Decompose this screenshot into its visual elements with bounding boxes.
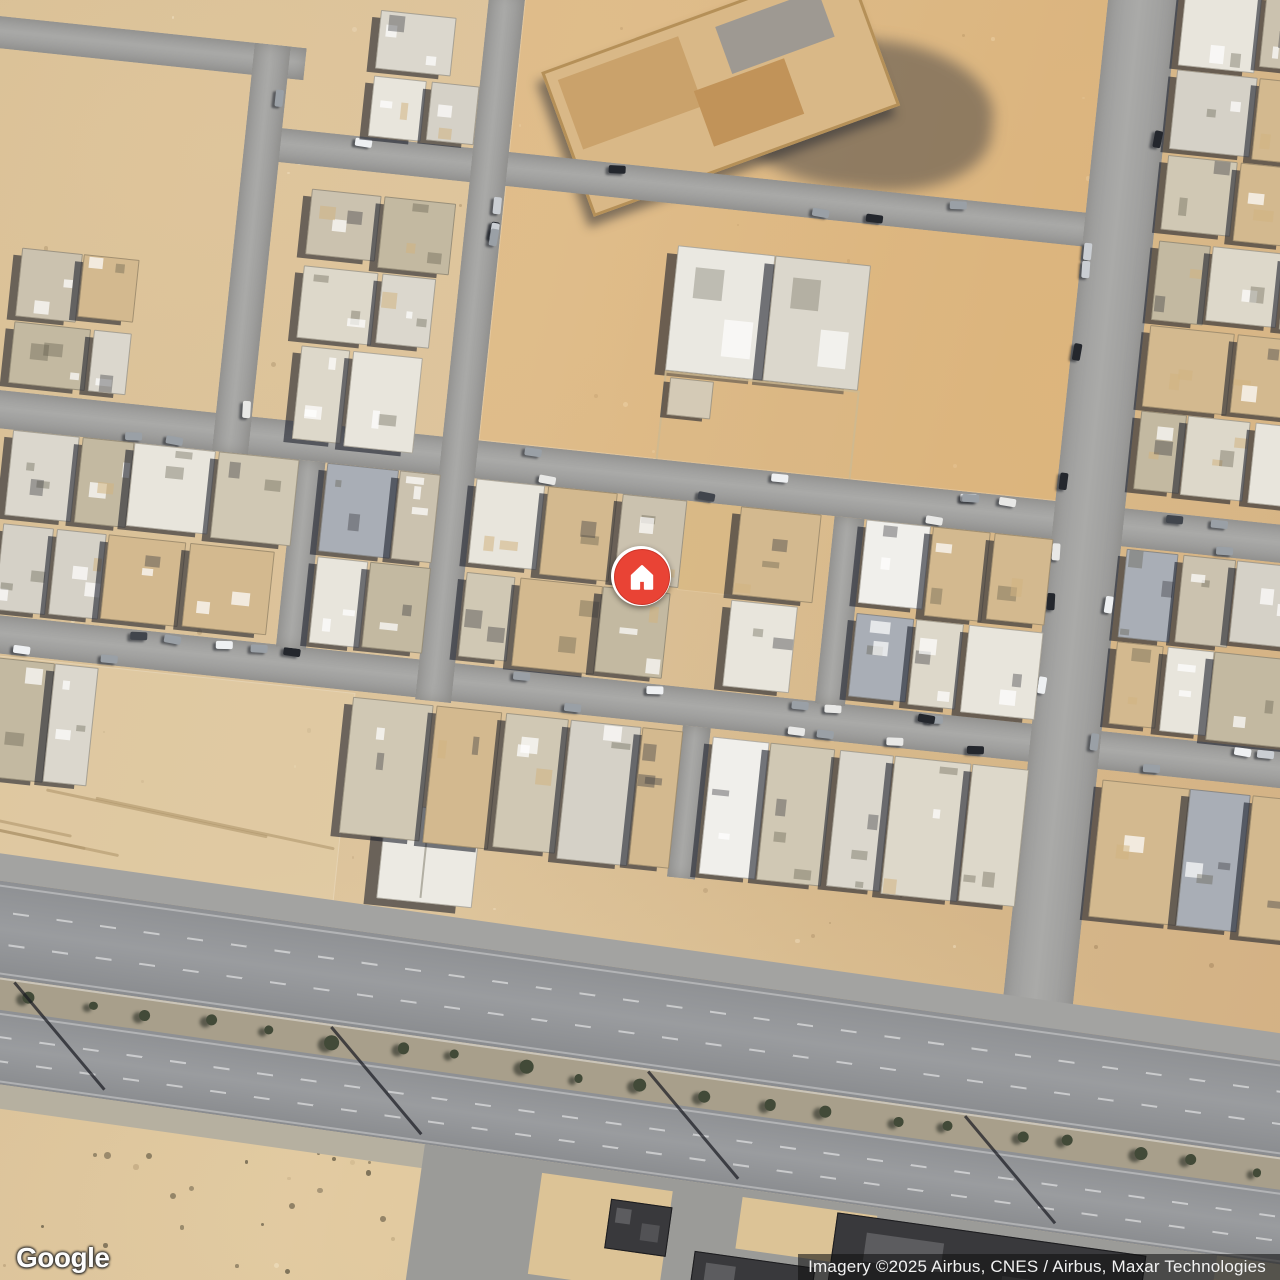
home-icon: [626, 561, 658, 593]
car: [1216, 546, 1233, 555]
roof-structure: [615, 1208, 632, 1224]
roof-structure: [1230, 101, 1241, 112]
attribution-bar: Imagery ©2025 Airbus, CNES / Airbus, Max…: [798, 1254, 1280, 1280]
building: [1206, 651, 1280, 749]
roof-structure: [1264, 700, 1274, 714]
roof-structure: [1218, 862, 1231, 870]
sand-pebble: [1209, 963, 1214, 968]
roof-structure: [1267, 900, 1280, 908]
sand-pebble: [352, 27, 357, 32]
car: [1257, 750, 1275, 760]
roof-structure: [1234, 437, 1248, 449]
roof-structure: [1233, 716, 1246, 728]
roof-structure: [1267, 348, 1280, 361]
median-tree: [138, 1009, 150, 1021]
construction-building: [604, 1199, 672, 1257]
roof-structure: [1260, 588, 1275, 605]
roof-structure: [1209, 45, 1224, 64]
building: [1178, 0, 1263, 74]
building: [1169, 69, 1258, 157]
roof-structure: [1230, 53, 1241, 68]
roof-structure: [704, 1263, 736, 1280]
median-tree: [449, 1049, 459, 1059]
marker-red-circle: [614, 549, 670, 605]
highway-layer: [0, 0, 1268, 1280]
roof-structure: [1259, 133, 1271, 149]
roof-structure: [1241, 385, 1257, 403]
map-canvas[interactable]: Google Imagery ©2025 Airbus, CNES / Airb…: [0, 0, 1280, 1280]
roof-structure: [640, 1223, 660, 1242]
location-marker[interactable]: [611, 546, 671, 606]
roof-structure: [1196, 874, 1213, 885]
building: [1229, 560, 1280, 648]
attribution-text: Imagery ©2025 Airbus, CNES / Airbus, Max…: [808, 1257, 1266, 1276]
roof-structure: [1207, 108, 1216, 117]
roof-structure: [388, 15, 405, 33]
google-logo[interactable]: Google: [16, 1242, 109, 1274]
